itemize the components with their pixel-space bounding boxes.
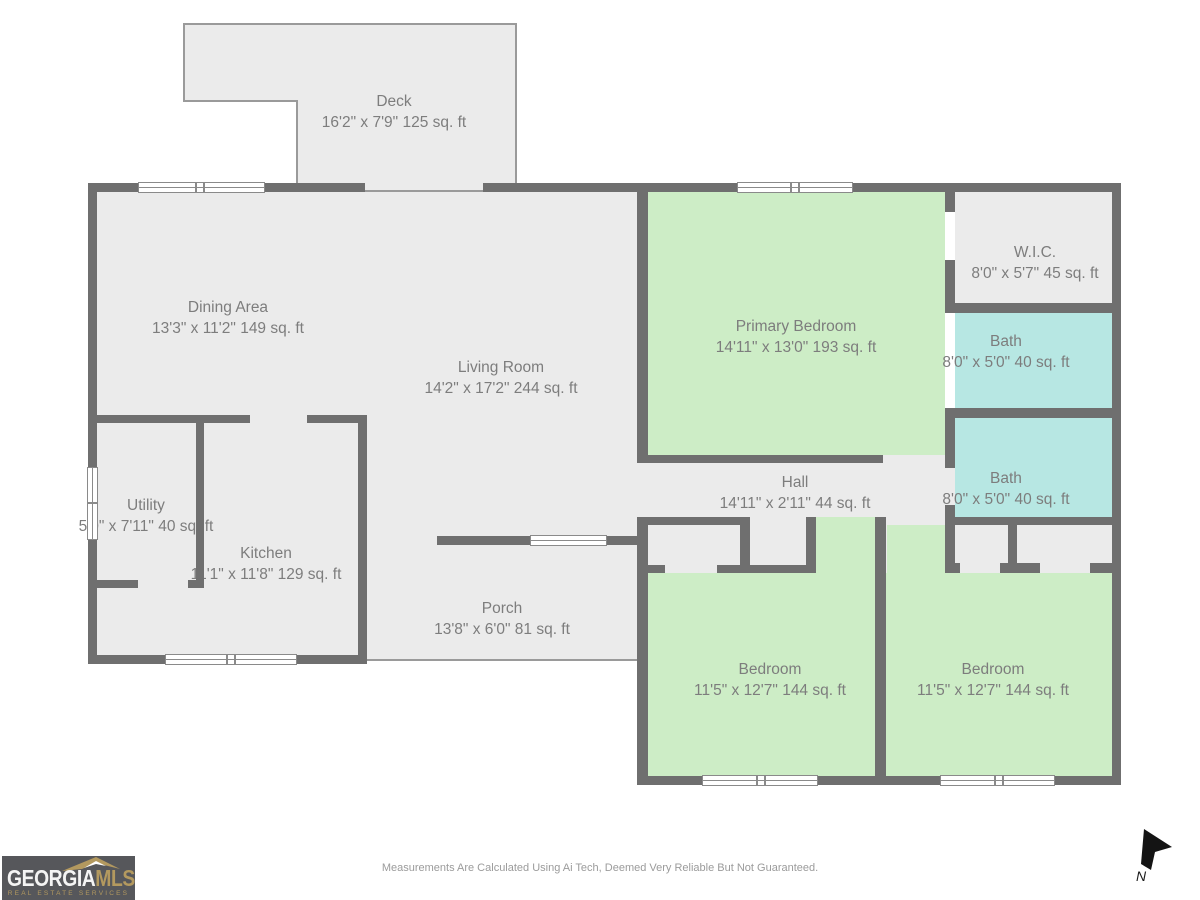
- wall-segment: [637, 565, 665, 573]
- wall-segment: [717, 565, 750, 573]
- room-dims: 11'1" x 11'8" 129 sq. ft: [116, 564, 416, 585]
- room-dims: 14'2" x 17'2" 244 sq. ft: [351, 378, 651, 399]
- room-dims: 11'5" x 12'7" 144 sq. ft: [843, 680, 1143, 701]
- window-mullion: [1002, 776, 1004, 785]
- room-name: Deck: [244, 91, 544, 112]
- wall-segment: [97, 580, 138, 588]
- wall-segment: [297, 655, 367, 664]
- room-label-porch: Porch 13'8" x 6'0" 81 sq. ft: [352, 598, 652, 640]
- room-name: Bath: [856, 331, 1156, 352]
- wall-segment: [740, 517, 750, 565]
- room-dims: 13'3" x 11'2" 149 sq. ft: [78, 318, 378, 339]
- window-symbol: [940, 775, 1055, 786]
- room-label-living: Living Room 14'2" x 17'2" 244 sq. ft: [351, 357, 651, 399]
- room-name: Kitchen: [116, 543, 416, 564]
- wall-segment: [945, 192, 955, 212]
- floor-plan: Deck 16'2" x 7'9" 125 sq. ft Dining Area…: [0, 0, 1200, 900]
- room-label-bath-upper: Bath 8'0" x 5'0" 40 sq. ft: [856, 331, 1156, 373]
- wall-segment: [945, 505, 955, 517]
- porch-edge-line: [362, 659, 648, 661]
- wall-segment: [1112, 183, 1121, 785]
- room-name: Bedroom: [843, 659, 1143, 680]
- window-mullion: [88, 502, 97, 504]
- wall-segment: [88, 540, 97, 664]
- room-name: Dining Area: [78, 297, 378, 318]
- window-symbol: [737, 182, 853, 193]
- room-dims: 8'0" x 5'0" 40 sq. ft: [856, 352, 1156, 373]
- wall-segment: [188, 580, 204, 588]
- window-symbol: [138, 182, 265, 193]
- wall-segment: [648, 455, 883, 463]
- wall-segment: [88, 183, 97, 467]
- logo-subtitle: REAL ESTATE SERVICES: [2, 890, 135, 897]
- wall-segment: [945, 408, 1112, 418]
- wall-segment: [750, 565, 816, 573]
- wall-segment: [648, 517, 740, 525]
- wall-segment: [88, 415, 250, 423]
- wall-segment: [875, 517, 886, 785]
- room-label-dining: Dining Area 13'3" x 11'2" 149 sq. ft: [78, 297, 378, 339]
- wall-segment: [358, 415, 367, 664]
- wall-segment: [483, 183, 737, 192]
- room-dims: 5'0" x 7'11" 40 sq. ft: [0, 516, 296, 537]
- wall-segment: [945, 563, 960, 573]
- bedroom-right-doorway: [887, 525, 945, 573]
- north-arrow-icon: [1128, 826, 1176, 870]
- room-dims: 14'11" x 2'11" 44 sq. ft: [645, 493, 945, 514]
- room-dims: 8'0" x 5'7" 45 sq. ft: [885, 263, 1185, 284]
- room-label-kitchen: Kitchen 11'1" x 11'8" 129 sq. ft: [116, 543, 416, 585]
- wall-segment: [1055, 776, 1121, 785]
- wall-segment: [853, 183, 1121, 192]
- window-mullion: [195, 183, 197, 192]
- window-mullion: [994, 776, 996, 785]
- room-name: Utility: [0, 495, 296, 516]
- wall-segment: [1017, 563, 1040, 573]
- wall-segment: [88, 655, 165, 664]
- wall-segment: [955, 303, 1112, 313]
- room-name: Living Room: [351, 357, 651, 378]
- window-symbol: [702, 775, 818, 786]
- room-label-deck: Deck 16'2" x 7'9" 125 sq. ft: [244, 91, 544, 133]
- room-name: Porch: [352, 598, 652, 619]
- window-symbol: [87, 467, 98, 540]
- room-label-utility: Utility 5'0" x 7'11" 40 sq. ft: [0, 495, 296, 537]
- wall-segment: [196, 423, 204, 580]
- room-label-hall: Hall 14'11" x 2'11" 44 sq. ft: [645, 472, 945, 514]
- window-mullion: [756, 776, 758, 785]
- north-indicator: N: [1128, 826, 1176, 888]
- wall-segment: [637, 517, 648, 785]
- window-mullion: [790, 183, 792, 192]
- wall-segment: [945, 418, 955, 468]
- wall-segment: [945, 260, 955, 313]
- north-label: N: [1136, 868, 1146, 884]
- room-dims: 16'2" x 7'9" 125 sq. ft: [244, 112, 544, 133]
- room-label-bedroom-right: Bedroom 11'5" x 12'7" 144 sq. ft: [843, 659, 1143, 701]
- bedroom-left-doorway: [813, 517, 875, 573]
- disclaimer-text: Measurements Are Calculated Using Ai Tec…: [0, 862, 1200, 874]
- window-symbol: [530, 535, 607, 546]
- wall-segment: [637, 192, 648, 463]
- room-name: Hall: [645, 472, 945, 493]
- window-mullion: [798, 183, 800, 192]
- room-dims: 13'8" x 6'0" 81 sq. ft: [352, 619, 652, 640]
- room-label-wic: W.I.C. 8'0" x 5'7" 45 sq. ft: [885, 242, 1185, 284]
- wall-segment: [265, 183, 365, 192]
- room-name: W.I.C.: [885, 242, 1185, 263]
- window-mullion: [234, 655, 236, 664]
- window-symbol: [165, 654, 297, 665]
- window-mullion: [203, 183, 205, 192]
- window-mullion: [226, 655, 228, 664]
- wall-segment: [945, 517, 1112, 525]
- wall-segment: [437, 536, 530, 545]
- wall-segment: [1008, 525, 1017, 573]
- wall-segment: [1090, 563, 1112, 573]
- window-mullion: [764, 776, 766, 785]
